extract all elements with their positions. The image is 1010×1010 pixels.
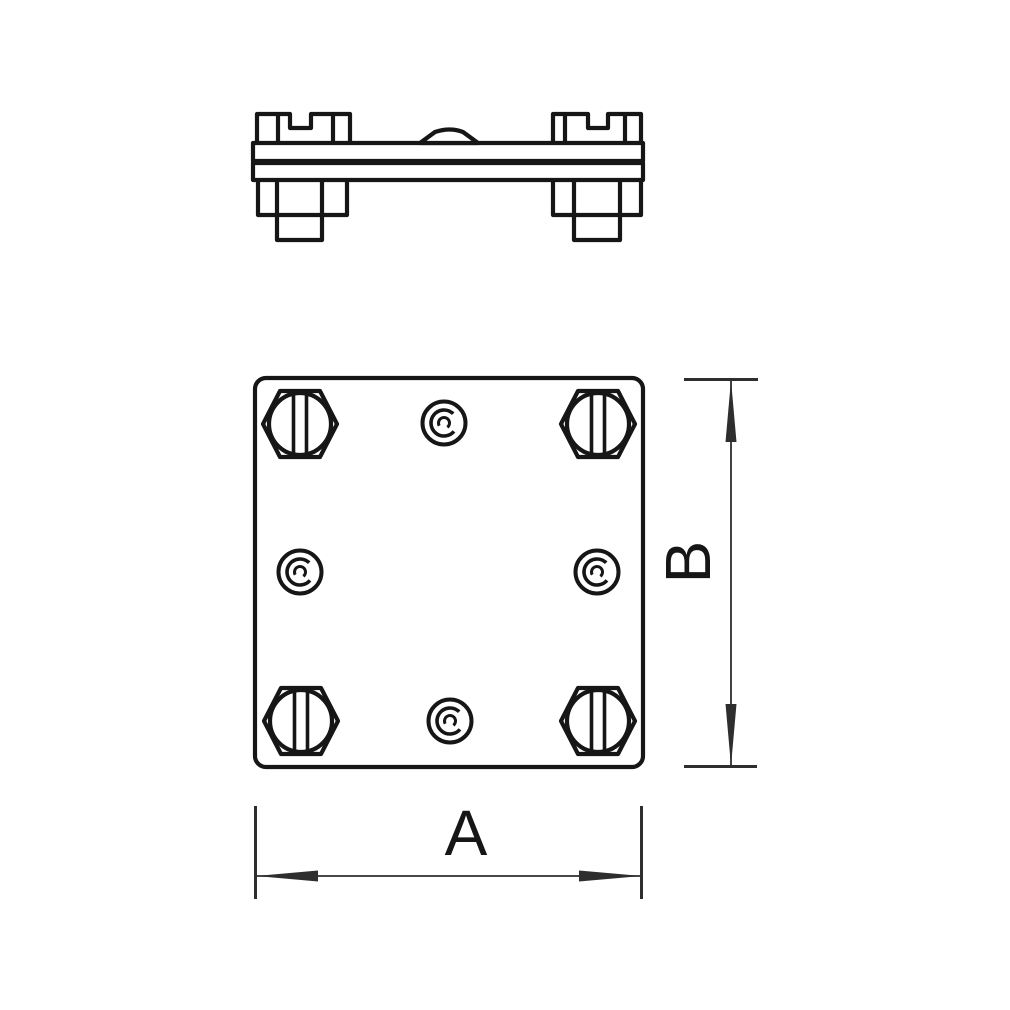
upper-clamp-plate (253, 143, 643, 161)
washer-mid-ring (579, 554, 616, 591)
dimension-a: A (256, 797, 642, 899)
hex-head-circle (567, 393, 629, 455)
washer-inner-ring (436, 415, 451, 430)
connector-drawing-svg: A B (0, 0, 1010, 1010)
spiral-washer-left (279, 551, 322, 594)
arrowhead-right (579, 871, 641, 882)
hex-screw-bottom-right (561, 688, 635, 754)
dimension-b: B (652, 380, 758, 767)
washer-inner-ring (589, 564, 604, 579)
technical-drawing-canvas: A B (0, 0, 1010, 1010)
nut-outline (258, 180, 347, 215)
bolt-shaft-outline (277, 180, 322, 240)
hex-head-circle (270, 690, 332, 752)
spiral-washer-bottom (429, 700, 472, 743)
hex-head-outline (561, 688, 635, 754)
washer-outer-ring (279, 551, 322, 594)
spiral-washer-right (576, 551, 619, 594)
washer-inner-ring (442, 713, 457, 728)
hex-head-outline (263, 391, 337, 457)
side-left-screw-head (257, 114, 350, 144)
side-left-nut (258, 180, 347, 240)
hex-head-outline (561, 391, 635, 457)
plan-view (255, 378, 643, 767)
side-right-screw-head (553, 114, 641, 144)
hex-head-outline (264, 688, 338, 754)
washer-mid-ring (432, 703, 469, 740)
nut-outline (553, 180, 641, 215)
lower-clamp-plate (253, 163, 643, 180)
hex-head-circle (269, 393, 331, 455)
center-dome (420, 130, 478, 144)
side-right-nut (553, 180, 641, 240)
hex-screw-top-right (561, 391, 635, 457)
hex-screw-top-left (263, 391, 337, 457)
spiral-washer-top (423, 402, 466, 445)
hex-head-circle (567, 690, 629, 752)
washer-outer-ring (423, 402, 466, 445)
arrowhead-bottom (726, 704, 737, 766)
washer-mid-ring (426, 405, 463, 442)
side-view (253, 114, 643, 240)
dim-label-b: B (652, 541, 724, 584)
washer-outer-ring (576, 551, 619, 594)
screw-head-outline (257, 114, 350, 144)
hex-screw-bottom-left (264, 688, 338, 754)
bolt-shaft-outline (574, 180, 620, 240)
washer-outer-ring (429, 700, 472, 743)
arrowhead-top (726, 380, 737, 442)
dim-label-a: A (445, 797, 488, 869)
washer-mid-ring (282, 554, 319, 591)
washer-inner-ring (292, 564, 307, 579)
arrowhead-left (256, 871, 318, 882)
